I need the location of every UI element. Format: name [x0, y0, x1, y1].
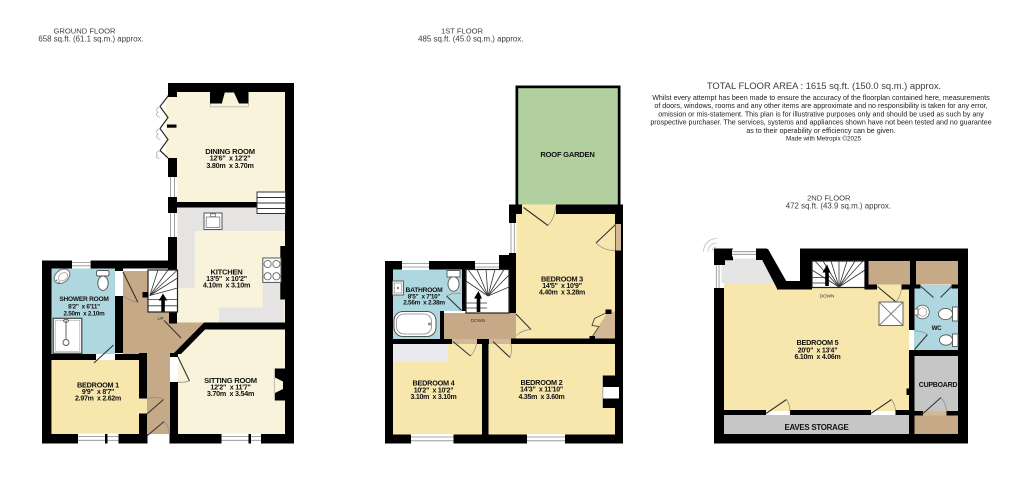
svg-text:BEDROOM 5: BEDROOM 5	[797, 338, 839, 347]
svg-text:3.10m x 3.10m: 3.10m x 3.10m	[411, 394, 457, 401]
svg-text:4.40m x 3.28m: 4.40m x 3.28m	[539, 290, 585, 297]
svg-text:4.10m x 3.10m: 4.10m x 3.10m	[203, 280, 250, 289]
svg-text:prospective purchaser. The ser: prospective purchaser. The services, sys…	[650, 119, 991, 127]
svg-text:CUPBOARD: CUPBOARD	[919, 382, 958, 389]
svg-text:2.50m x 2.10m: 2.50m x 2.10m	[64, 310, 106, 317]
svg-text:of doors, windows, rooms and a: of doors, windows, rooms and any other i…	[654, 102, 987, 110]
svg-text:DOWN: DOWN	[471, 318, 486, 323]
svg-text:BEDROOM 4: BEDROOM 4	[413, 379, 456, 388]
svg-text:WC: WC	[932, 325, 943, 332]
svg-text:3.80m x 3.70m: 3.80m x 3.70m	[206, 161, 253, 170]
svg-text:SHOWER ROOM: SHOWER ROOM	[59, 296, 109, 303]
svg-text:omission or mis-statement. Thi: omission or mis-statement. This plan is …	[658, 110, 984, 118]
svg-text:2.97m x 2.62m: 2.97m x 2.62m	[75, 396, 121, 403]
svg-text:ROOF GARDEN: ROOF GARDEN	[540, 150, 594, 159]
svg-text:TOTAL FLOOR AREA : 1615 sq.ft.: TOTAL FLOOR AREA : 1615 sq.ft. (150.0 sq…	[707, 80, 941, 91]
svg-text:658 sq.ft. (61.1 sq.m.) approx: 658 sq.ft. (61.1 sq.m.) approx.	[38, 35, 143, 44]
svg-text:as to their operability or eff: as to their operability or efficiency ca…	[746, 127, 895, 135]
svg-text:6.10m x 4.06m: 6.10m x 4.06m	[795, 354, 841, 361]
svg-text:472 sq.ft. (43.9 sq.m.) approx: 472 sq.ft. (43.9 sq.m.) approx.	[786, 202, 891, 211]
svg-text:2.56m x 2.38m: 2.56m x 2.38m	[403, 300, 445, 307]
svg-text:UP: UP	[157, 316, 163, 321]
svg-text:3.70m x 3.54m: 3.70m x 3.54m	[207, 389, 254, 398]
svg-text:BEDROOM 2: BEDROOM 2	[521, 378, 563, 387]
svg-text:14'3" x 11'10": 14'3" x 11'10"	[520, 387, 563, 394]
svg-text:EAVES STORAGE: EAVES STORAGE	[785, 423, 849, 432]
svg-text:DOWN: DOWN	[820, 293, 835, 298]
svg-text:4.35m x 3.60m: 4.35m x 3.60m	[519, 394, 565, 401]
svg-text:Whilst every attempt has been: Whilst every attempt has been made to en…	[652, 94, 990, 102]
svg-text:8'2" x 6'11": 8'2" x 6'11"	[68, 303, 100, 310]
svg-text:Made with Metropix ©2025: Made with Metropix ©2025	[786, 135, 861, 143]
svg-text:485 sq.ft. (45.0 sq.m.) approx: 485 sq.ft. (45.0 sq.m.) approx.	[418, 35, 523, 44]
